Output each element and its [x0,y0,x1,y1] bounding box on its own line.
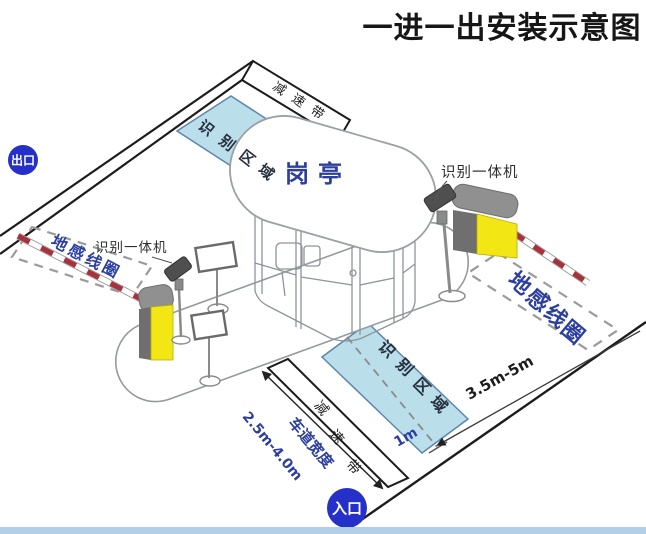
barrier-machine-right-side [453,210,477,254]
entrance-badge: 入口 [327,488,367,528]
pole-base [439,291,465,302]
installation-diagram: 3.5m-5m 1m 车道宽度 2.5m-4.0m 岗亭 [0,0,646,534]
pole-base [172,336,190,344]
exit-badge-label: 出口 [11,153,35,168]
camera-bracket [437,211,447,224]
sign-panel [195,242,236,272]
booth-label: 岗亭 [285,160,351,188]
bottom-strip [0,527,646,534]
sign-panel [191,311,226,340]
reader-left-label: 识别一体机 [95,240,168,256]
reader-right-label: 识别一体机 [441,164,519,181]
camera-bracket [175,279,183,290]
exit-badge: 出口 [8,145,38,175]
barrier-machine-left-side [139,307,151,360]
page-title: 一进一出安装示意图 [363,11,642,46]
barrier-machine-left-body [151,305,173,360]
entrance-badge-label: 入口 [332,500,362,518]
diagram-canvas: 3.5m-5m 1m 车道宽度 2.5m-4.0m 岗亭 [0,0,646,534]
